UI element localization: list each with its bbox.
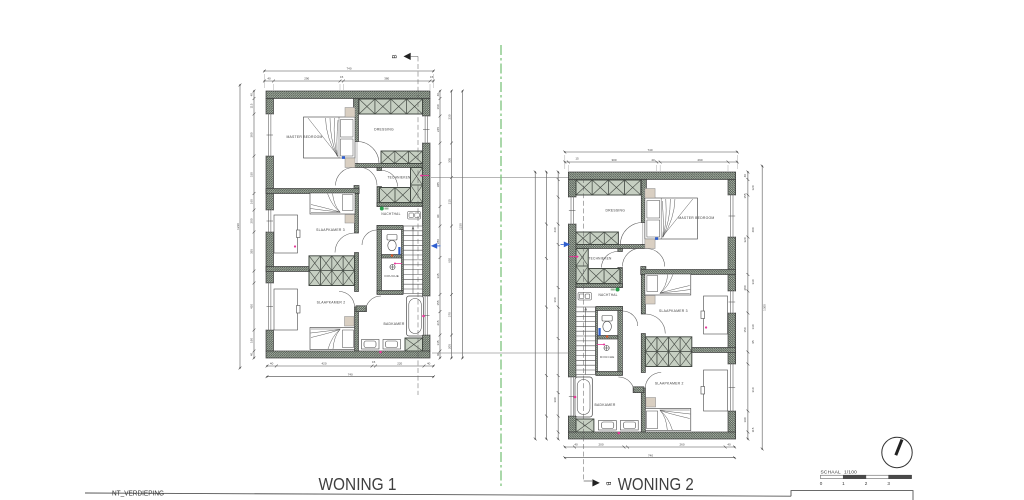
svg-text:1300: 1300 [762,304,766,311]
svg-text:130: 130 [751,324,755,329]
svg-text:DRESSING: DRESSING [374,128,394,132]
svg-text:215: 215 [447,199,451,204]
svg-text:40: 40 [427,362,431,366]
svg-text:15: 15 [340,75,344,79]
svg-text:390: 390 [553,397,557,402]
svg-text:TECHNIEKEN: TECHNIEKEN [387,176,410,180]
svg-text:385: 385 [436,182,440,187]
svg-text:245: 245 [436,127,440,132]
svg-text:300: 300 [611,158,616,162]
svg-text:DRESSING: DRESSING [605,209,625,213]
svg-text:155: 155 [436,300,440,305]
svg-text:155: 155 [743,193,747,198]
svg-text:220: 220 [397,362,402,366]
svg-text:320: 320 [743,237,747,242]
svg-text:15: 15 [430,75,434,79]
svg-text:40: 40 [574,443,578,447]
svg-text:40: 40 [436,353,440,357]
svg-text:SLAAPKAMER 2: SLAAPKAMER 2 [317,301,346,305]
svg-text:DOUCHE: DOUCHE [600,355,615,359]
svg-text:290: 290 [304,77,309,81]
svg-text:MASTER BEDROOM: MASTER BEDROOM [678,216,714,220]
svg-text:40: 40 [267,77,271,81]
svg-text:400: 400 [751,227,755,232]
svg-text:DOUCHE: DOUCHE [385,274,400,278]
svg-text:330: 330 [250,172,254,177]
svg-text:1230: 1230 [458,223,462,230]
svg-text:TECHNIEKEN: TECHNIEKEN [588,257,611,261]
svg-text:290: 290 [697,158,702,162]
svg-text:150: 150 [743,327,747,332]
svg-text:WONING 2: WONING 2 [618,474,694,494]
svg-text:740: 740 [348,372,353,376]
svg-text:160: 160 [436,104,440,109]
svg-text:NACHTHAL: NACHTHAL [381,212,400,216]
svg-text:MASTER BEDROOM: MASTER BEDROOM [286,135,322,139]
svg-text:2: 2 [865,481,868,486]
svg-text:280: 280 [743,285,747,290]
svg-text:40: 40 [743,174,747,178]
svg-text:SLAAPKAMER 2: SLAAPKAMER 2 [655,382,684,386]
svg-text:740: 740 [648,453,653,457]
svg-text:280: 280 [436,239,440,244]
svg-text:115: 115 [751,427,755,432]
svg-text:205: 205 [447,344,451,349]
svg-text:BADKAMER: BADKAMER [594,403,615,407]
svg-text:B: B [392,55,399,59]
svg-text:215: 215 [436,320,440,325]
svg-text:NACHTHAL: NACHTHAL [599,293,618,297]
svg-text:230: 230 [447,114,451,119]
svg-text:200: 200 [250,218,254,223]
svg-text:330: 330 [751,279,755,284]
svg-text:90: 90 [436,214,440,218]
svg-text:420: 420 [321,362,326,366]
svg-text:40: 40 [651,158,655,162]
svg-text:190: 190 [743,417,747,422]
svg-text:430: 430 [553,227,557,232]
svg-text:115: 115 [250,103,254,108]
svg-text:160: 160 [250,199,254,204]
svg-text:145: 145 [436,340,440,345]
svg-text:3: 3 [887,481,890,486]
svg-text:NT_VERDIEPING: NT_VERDIEPING [112,491,164,498]
svg-text:15: 15 [575,156,579,160]
svg-text:360: 360 [553,297,557,302]
svg-text:335: 335 [436,273,440,278]
svg-text:355: 355 [250,249,254,254]
svg-text:40: 40 [250,353,254,357]
svg-text:SLAAPKAMER 3: SLAAPKAMER 3 [316,228,345,232]
svg-text:740: 740 [647,148,652,152]
svg-text:40: 40 [436,93,440,97]
svg-text:305: 305 [447,158,451,163]
svg-text:BADKAMER: BADKAMER [383,322,404,326]
svg-text:40: 40 [250,93,254,97]
svg-text:200: 200 [598,443,603,447]
svg-text:40: 40 [270,362,274,366]
svg-text:SCHAAL 1/100: SCHAAL 1/100 [821,469,858,475]
svg-text:120: 120 [751,185,755,190]
svg-text:1230: 1230 [236,223,240,230]
svg-text:260: 260 [679,443,684,447]
svg-text:370: 370 [447,312,451,317]
svg-text:190: 190 [250,338,254,343]
svg-text:SLAAPKAMER 3: SLAAPKAMER 3 [659,309,688,313]
svg-text:40: 40 [727,443,731,447]
svg-text:380: 380 [250,132,254,137]
svg-text:740: 740 [346,67,351,71]
svg-text:15: 15 [372,360,376,364]
svg-text:310: 310 [751,387,755,392]
svg-text:95: 95 [751,340,755,344]
svg-text:0: 0 [820,481,823,486]
svg-text:430: 430 [250,304,254,309]
svg-text:B: B [605,481,612,485]
svg-text:WONING 1: WONING 1 [319,474,397,494]
svg-text:380: 380 [384,77,389,81]
svg-text:1: 1 [842,481,845,486]
svg-text:620: 620 [447,258,451,263]
